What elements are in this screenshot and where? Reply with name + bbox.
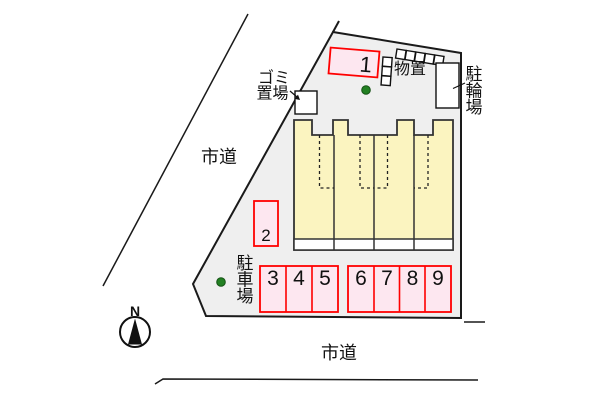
parking-space-9-number: 9	[432, 267, 444, 290]
parking-space-3-number: 3	[267, 267, 279, 290]
bicycle-label-char: 場	[466, 98, 483, 117]
garbage-storage-rect	[295, 91, 317, 114]
parking-area-label-char: 場	[237, 287, 254, 306]
shed-unit	[382, 66, 392, 76]
shed-unit	[381, 76, 391, 86]
bicycle-parking-rect	[436, 63, 459, 108]
parking-space-1: 1	[328, 48, 379, 78]
parking-space-7-number: 7	[381, 267, 393, 290]
road-label-bottom: 市道	[321, 343, 357, 363]
parking-space-4-number: 4	[293, 267, 305, 290]
parking-space-6-number: 6	[355, 267, 367, 290]
tree-icon	[362, 86, 371, 95]
shed-unit	[396, 49, 407, 60]
site-plan-drawing: 1 2 3 4 5 6 7 8 9 市道 市道 ゴミ 置場 物置 駐 輪 場 駐…	[0, 0, 600, 400]
parking-space-1-number: 1	[359, 52, 373, 78]
shed-unit	[405, 51, 416, 62]
site-plan: 1 2 3 4 5 6 7 8 9 市道 市道 ゴミ 置場 物置 駐 輪 場 駐…	[0, 0, 600, 400]
parking-space-2-number: 2	[261, 226, 270, 245]
road-label-left: 市道	[201, 147, 237, 167]
parking-space-5-number: 5	[319, 267, 331, 290]
garbage-label-line1: ゴミ	[258, 68, 290, 87]
parking-space-8-number: 8	[407, 267, 419, 290]
garbage-label-line2: 置場	[256, 85, 288, 103]
tree-icon	[217, 278, 226, 287]
shed-units-column	[381, 57, 392, 86]
shed-label: 物置	[394, 60, 426, 78]
shed-unit	[382, 57, 392, 67]
